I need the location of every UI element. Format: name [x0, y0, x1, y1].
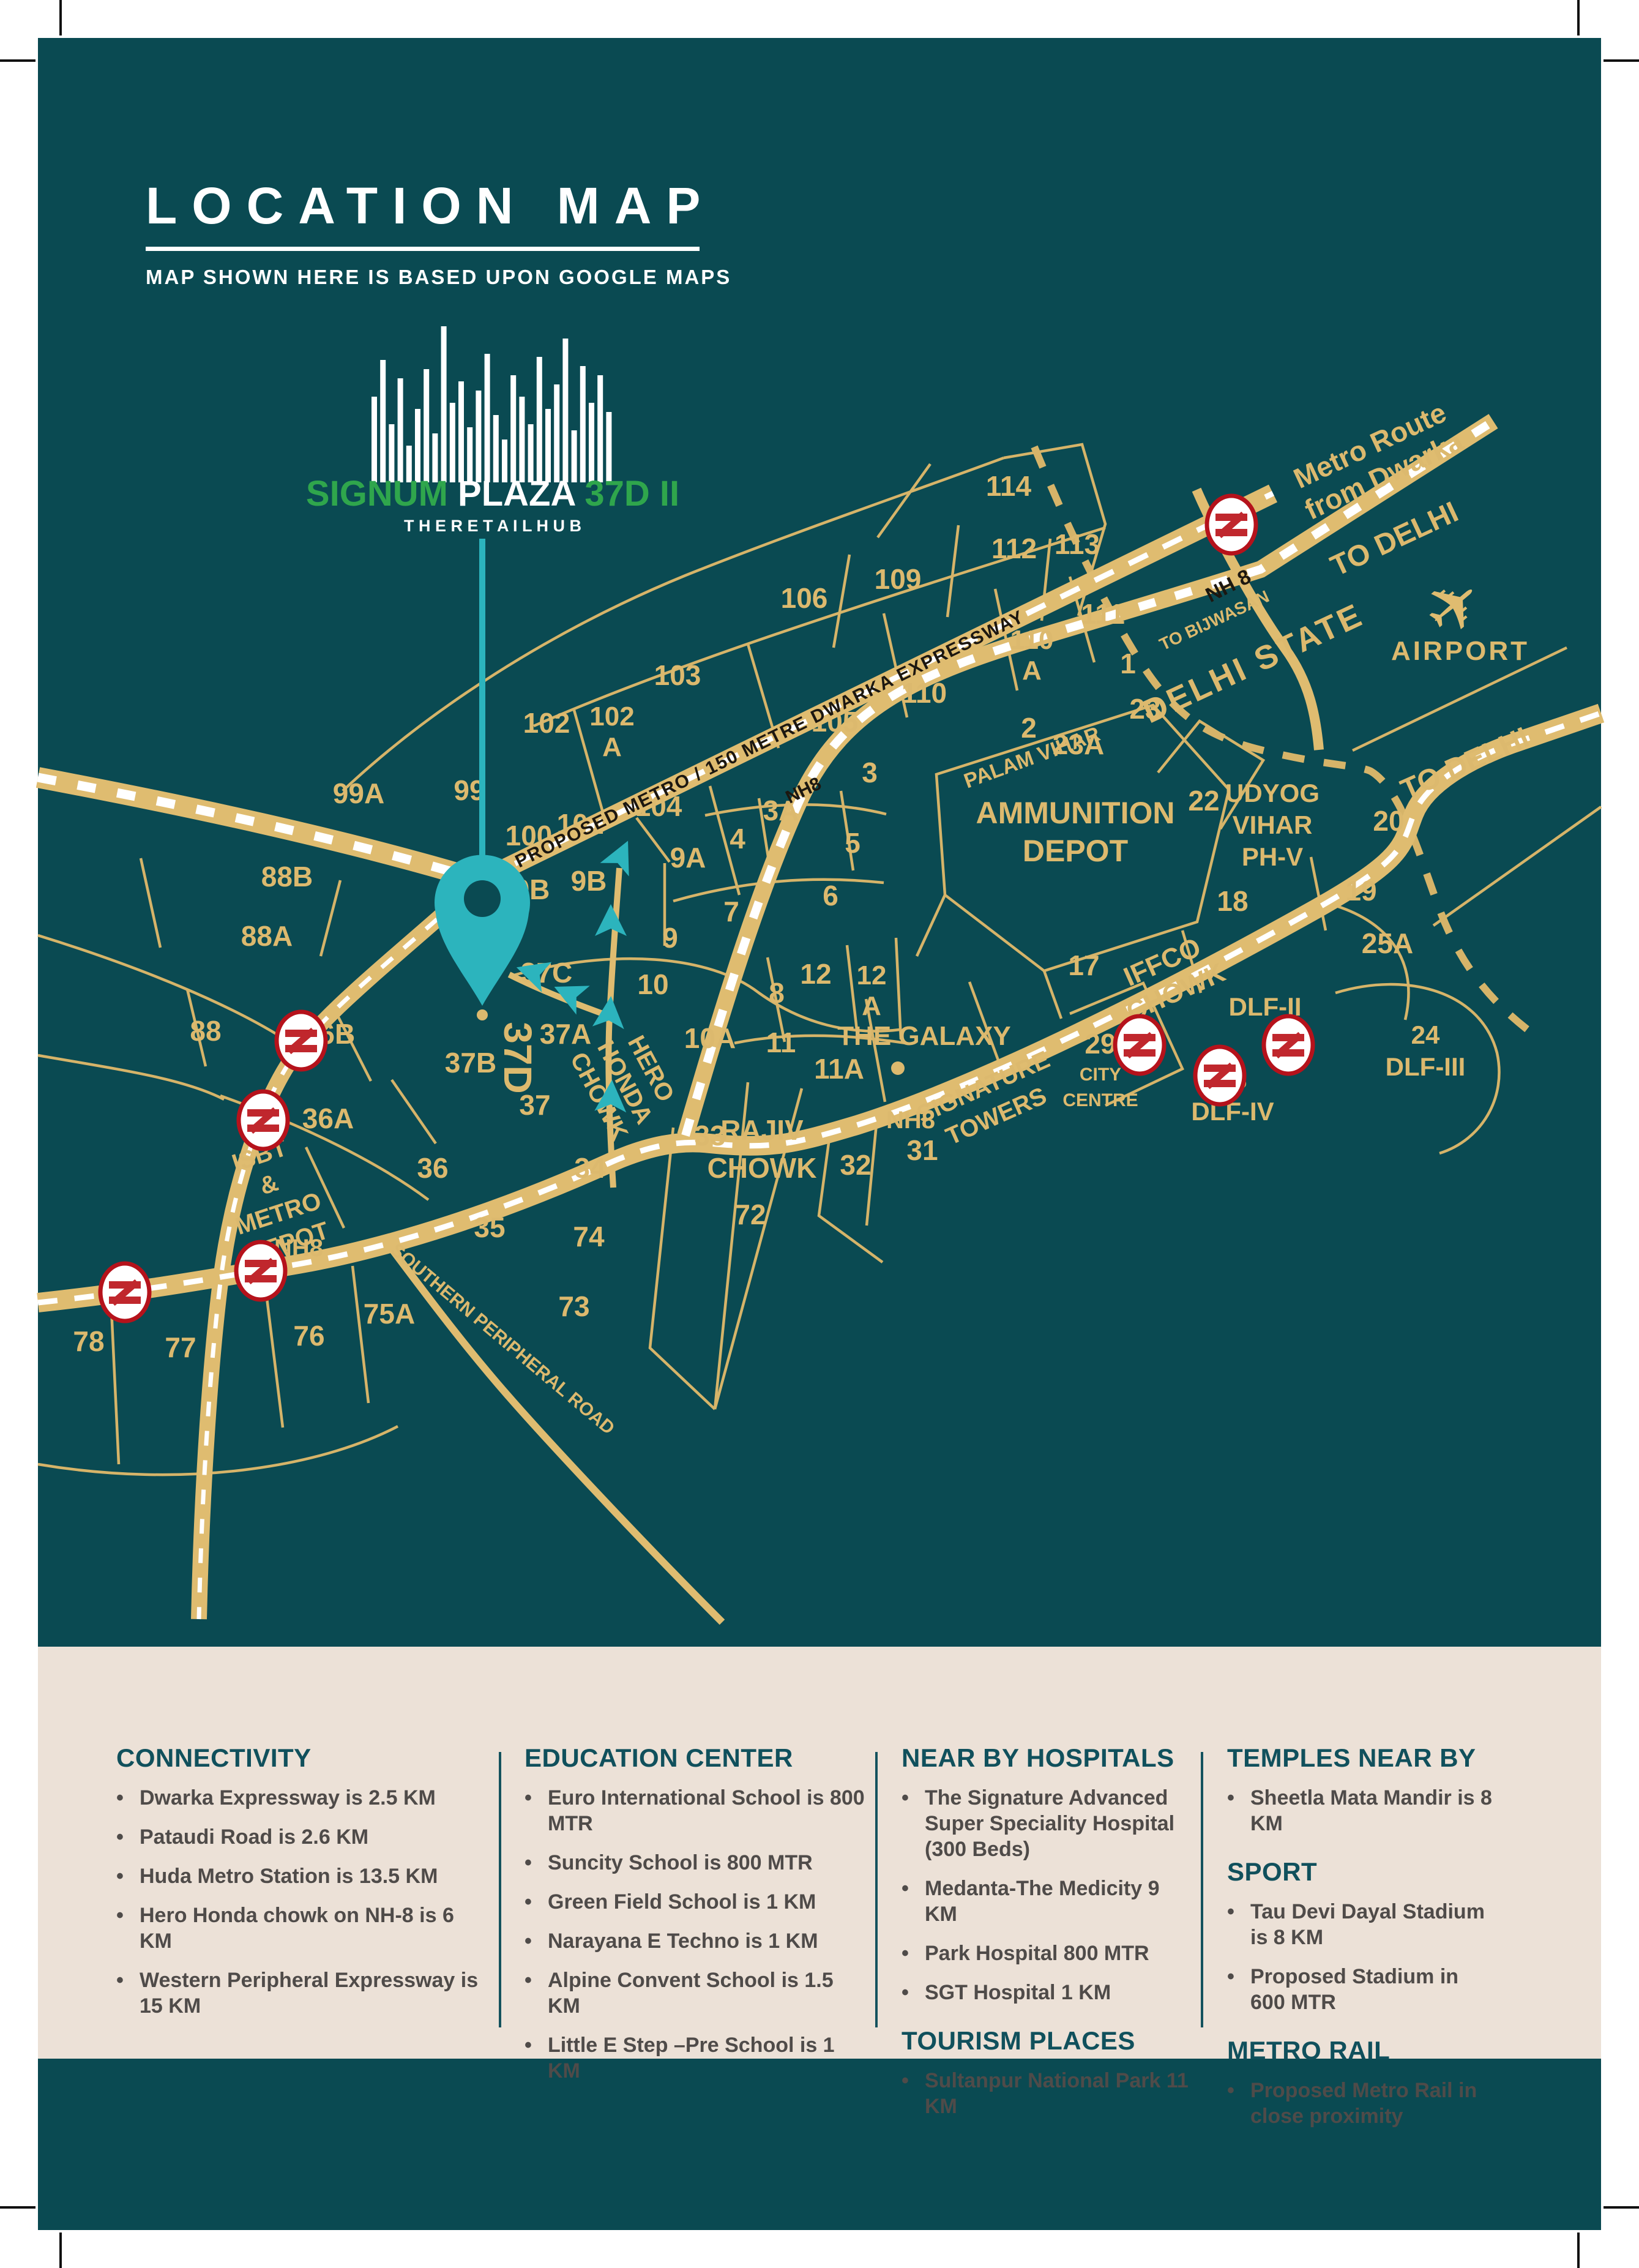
map-label: 17: [1068, 949, 1099, 981]
list-item: Medanta-The Medicity 9 KM: [902, 1876, 1189, 1927]
title-block: LOCATION MAP MAP SHOWN HERE IS BASED UPO…: [146, 176, 731, 289]
section-list: Sultanpur National Park 11 KM: [902, 2068, 1189, 2119]
map-label: THE GALAXY: [837, 1021, 1011, 1051]
list-item: Euro International School is 800 MTR: [525, 1785, 867, 1836]
map-label: 34: [574, 1152, 606, 1184]
map-label: 113: [1055, 528, 1100, 560]
map-label: 9A: [670, 842, 706, 874]
map-label: 22: [1188, 785, 1219, 817]
map-label: 88: [190, 1015, 221, 1047]
map-label: 24DLF-III: [1386, 1020, 1466, 1081]
map-label: 29: [1085, 1028, 1116, 1060]
map-label: 6: [823, 880, 838, 911]
map-label: 32: [840, 1149, 871, 1181]
map-label: 25A: [1362, 927, 1413, 959]
list-item: The Signature Advanced Super Speciality …: [902, 1785, 1189, 1862]
logo-tagline: T H E R E T A I L H U B: [404, 517, 581, 535]
info-panel: CONNECTIVITYDwarka Expressway is 2.5 KMP…: [38, 1647, 1601, 2059]
list-item: Dwarka Expressway is 2.5 KM: [116, 1785, 483, 1811]
map-label: 37A: [540, 1018, 591, 1050]
logo-skyline: [371, 326, 611, 482]
map-label: DELHI STATE: [1137, 596, 1369, 730]
map-label: 18: [1217, 885, 1248, 917]
map-label: 35: [474, 1211, 505, 1243]
map-label: 112: [991, 533, 1037, 564]
section-list: Dwarka Expressway is 2.5 KMPataudi Road …: [116, 1785, 483, 2019]
metro-station-icon: [1195, 1047, 1244, 1104]
section-list: Tau Devi Dayal Stadium is 8 KMProposed S…: [1227, 1899, 1496, 2015]
map-label: 78: [73, 1325, 104, 1357]
map-label: 2: [1021, 712, 1037, 744]
list-item: Green Field School is 1 KM: [525, 1889, 867, 1915]
state-boundary-dashed-line: [1034, 447, 1542, 1041]
brochure-page: ✈ 1141131121091061031111110105102102A110…: [0, 0, 1639, 2268]
map-label: AMMUNITIONDEPOT: [976, 796, 1175, 868]
section-list: Proposed Metro Rail in close proximity: [1227, 2078, 1496, 2129]
list-item: Tau Devi Dayal Stadium is 8 KM: [1227, 1899, 1496, 1950]
map-label: 11A: [814, 1053, 864, 1085]
metro-station-icon: [239, 1091, 288, 1149]
section-heading: METRO RAIL: [1227, 2036, 1496, 2065]
logo-name: SIGNUM PLAZA 37D II: [306, 474, 679, 514]
map-label: 102A: [589, 702, 634, 762]
list-item: Little E Step –Pre School is 1 KM: [525, 2032, 867, 2084]
location-pin: [435, 855, 530, 1020]
map-label: PROPOSED METRO / 150 METRE DWARKA EXPRES…: [512, 607, 1028, 872]
map-label: 19: [1345, 875, 1376, 907]
pin-dot: [477, 1009, 488, 1020]
section-heading: TEMPLES NEAR BY: [1227, 1743, 1496, 1773]
map-label: UDYOGVIHARPH-V: [1225, 779, 1320, 871]
panel-divider: [875, 1752, 878, 2027]
metro-station-icon: [277, 1012, 326, 1069]
title-underline: [146, 247, 700, 251]
the-galaxy-dot: [891, 1061, 905, 1075]
map-label: 103: [654, 659, 701, 691]
map-label: 37D: [496, 1022, 540, 1093]
section-heading: EDUCATION CENTER: [525, 1743, 867, 1773]
panel-divider: [499, 1752, 501, 2027]
section-heading: TOURISM PLACES: [902, 2026, 1189, 2056]
page-subtitle: MAP SHOWN HERE IS BASED UPON GOOGLE MAPS: [146, 266, 731, 289]
metro-station-icon: [100, 1263, 149, 1321]
list-item: Narayana E Techno is 1 KM: [525, 1928, 867, 1954]
list-item: Sheetla Mata Mandir is 8 KM: [1227, 1785, 1496, 1836]
map-label: TO DELHI: [1396, 721, 1534, 806]
map-label: 31: [906, 1134, 938, 1166]
map-label: 37: [519, 1089, 550, 1121]
list-item: Pataudi Road is 2.6 KM: [116, 1824, 483, 1850]
map-label: 9: [662, 922, 678, 954]
list-item: Park Hospital 800 MTR: [902, 1941, 1189, 1966]
map-label: 7: [723, 896, 739, 927]
section-list: Euro International School is 800 MTRSunc…: [525, 1785, 867, 2084]
list-item: Huda Metro Station is 13.5 KM: [116, 1863, 483, 1889]
map-label: 110A: [1010, 625, 1054, 686]
map-label: 10: [637, 968, 668, 1000]
section-list: Sheetla Mata Mandir is 8 KM: [1227, 1785, 1496, 1836]
section-list: The Signature Advanced Super Speciality …: [902, 1785, 1189, 2005]
map-label: 12A: [857, 960, 887, 1021]
map-label: 8: [769, 977, 785, 1009]
map-label: 10A: [684, 1022, 736, 1054]
map-label: 12: [800, 958, 831, 990]
map-label: 102: [523, 707, 570, 739]
metro-station-icon: [1115, 1016, 1164, 1074]
section-heading: NEAR BY HOSPITALS: [902, 1743, 1189, 1773]
list-item: Alpine Convent School is 1.5 KM: [525, 1967, 867, 2019]
metro-station-icon: [1207, 496, 1256, 553]
map-label: 109: [875, 563, 922, 595]
map-label: 36: [417, 1152, 448, 1184]
list-item: Western Peripheral Expressway is 15 KM: [116, 1967, 483, 2019]
list-item: Proposed Stadium in 600 MTR: [1227, 1964, 1496, 2015]
list-item: SGT Hospital 1 KM: [902, 1980, 1189, 2005]
map-label: 37B: [445, 1047, 496, 1079]
pin-connector-line: [479, 539, 485, 857]
map-label: 9B: [571, 865, 607, 897]
map-label: 5: [845, 827, 861, 859]
map-label: 4: [730, 823, 745, 855]
list-item: Sultanpur National Park 11 KM: [902, 2068, 1189, 2119]
map-label: 88B: [261, 861, 313, 893]
list-item: Hero Honda chowk on NH-8 is 6 KM: [116, 1903, 483, 1954]
map-label: 77: [165, 1331, 196, 1363]
page-title: LOCATION MAP: [146, 176, 731, 236]
info-column: CONNECTIVITYDwarka Expressway is 2.5 KMP…: [116, 1743, 483, 2032]
signum-plaza-logo: SIGNUM PLAZA 37D II T H E R E T A I L H …: [306, 326, 679, 535]
map-label: 11: [766, 1027, 796, 1058]
map-label: 114: [986, 470, 1032, 502]
map-label: 72: [734, 1199, 766, 1230]
map-label: 73: [558, 1290, 589, 1322]
list-item: Proposed Metro Rail in close proximity: [1227, 2078, 1496, 2129]
metro-station-icon: [1264, 1016, 1313, 1074]
map-label: 3: [862, 757, 878, 788]
map-label: 74: [573, 1221, 605, 1252]
section-heading: CONNECTIVITY: [116, 1743, 483, 1773]
info-column: NEAR BY HOSPITALSThe Signature Advanced …: [902, 1743, 1189, 2133]
map-label: SOUTHERN PERIPHERAL ROAD: [387, 1240, 618, 1439]
map-label: AIRPORT: [1391, 636, 1529, 666]
route-arrow-icon: [595, 904, 627, 936]
map-label: 99A: [333, 777, 384, 809]
panel-divider: [1201, 1752, 1203, 2027]
map-label: 76: [293, 1320, 324, 1352]
map-label: 20: [1373, 805, 1404, 837]
info-column: EDUCATION CENTEREuro International Schoo…: [525, 1743, 867, 2097]
section-heading: SPORT: [1227, 1857, 1496, 1887]
map-label: 106: [781, 582, 828, 614]
metro-station-icon: [236, 1242, 285, 1300]
info-column: TEMPLES NEAR BYSheetla Mata Mandir is 8 …: [1227, 1743, 1496, 2143]
map-label: 23A: [1053, 728, 1104, 760]
list-item: Suncity School is 800 MTR: [525, 1850, 867, 1876]
map-label: 36A: [302, 1102, 354, 1134]
map-label: 75A: [364, 1298, 415, 1330]
map-label: 111: [1081, 598, 1125, 630]
map-label: 1: [1120, 648, 1136, 679]
map-label: 88A: [241, 920, 293, 952]
